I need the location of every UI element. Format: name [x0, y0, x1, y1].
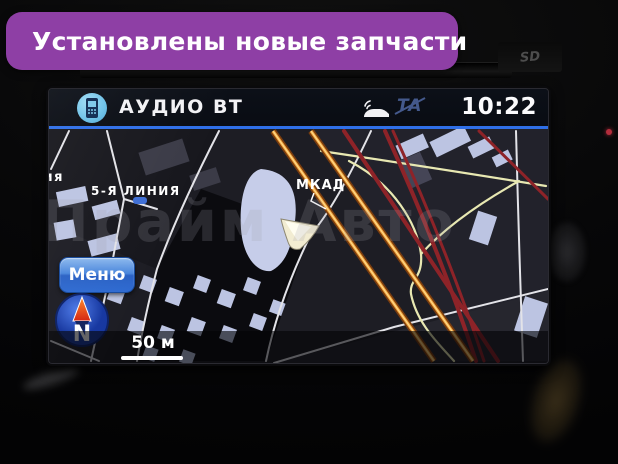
scale-line [121, 356, 183, 360]
sd-card-slot: SD [498, 42, 562, 72]
promo-banner-text: Установлены новые запчасти [32, 27, 467, 56]
nav-screen: ния 5-Я ЛИНИЯ МКАД Прайм Авто Меню [48, 88, 549, 364]
map-bottom-bar: 50 м [49, 331, 548, 363]
scale-label: 50 м [121, 333, 185, 353]
map-canvas: ния 5-Я ЛИНИЯ МКАД [49, 129, 548, 363]
status-led [606, 129, 612, 135]
status-bar: АУДИО BT TA 10:22 [49, 89, 548, 129]
reflection-streak [521, 353, 591, 449]
phone-icon[interactable] [77, 93, 107, 123]
street-label-partial: ния [49, 170, 64, 185]
ta-off-icon: TA [397, 96, 422, 116]
map-view[interactable]: ния 5-Я ЛИНИЯ МКАД [49, 129, 548, 363]
menu-button[interactable]: Меню [59, 257, 135, 293]
reflection-streak [21, 363, 80, 393]
highway-label: МКАД [296, 178, 345, 193]
volume-knob[interactable] [548, 222, 586, 282]
route-tag [133, 197, 147, 204]
promo-banner: Установлены новые запчасти [6, 12, 458, 70]
audio-source-label: АУДИО BT [119, 96, 243, 118]
clock: 10:22 [461, 94, 537, 120]
car-traffic-icon [361, 100, 391, 124]
sd-slot-label: SD [519, 49, 540, 65]
street-label: 5-Я ЛИНИЯ [91, 184, 181, 198]
dashboard-background: SD Установлены новые запчасти [0, 0, 618, 464]
